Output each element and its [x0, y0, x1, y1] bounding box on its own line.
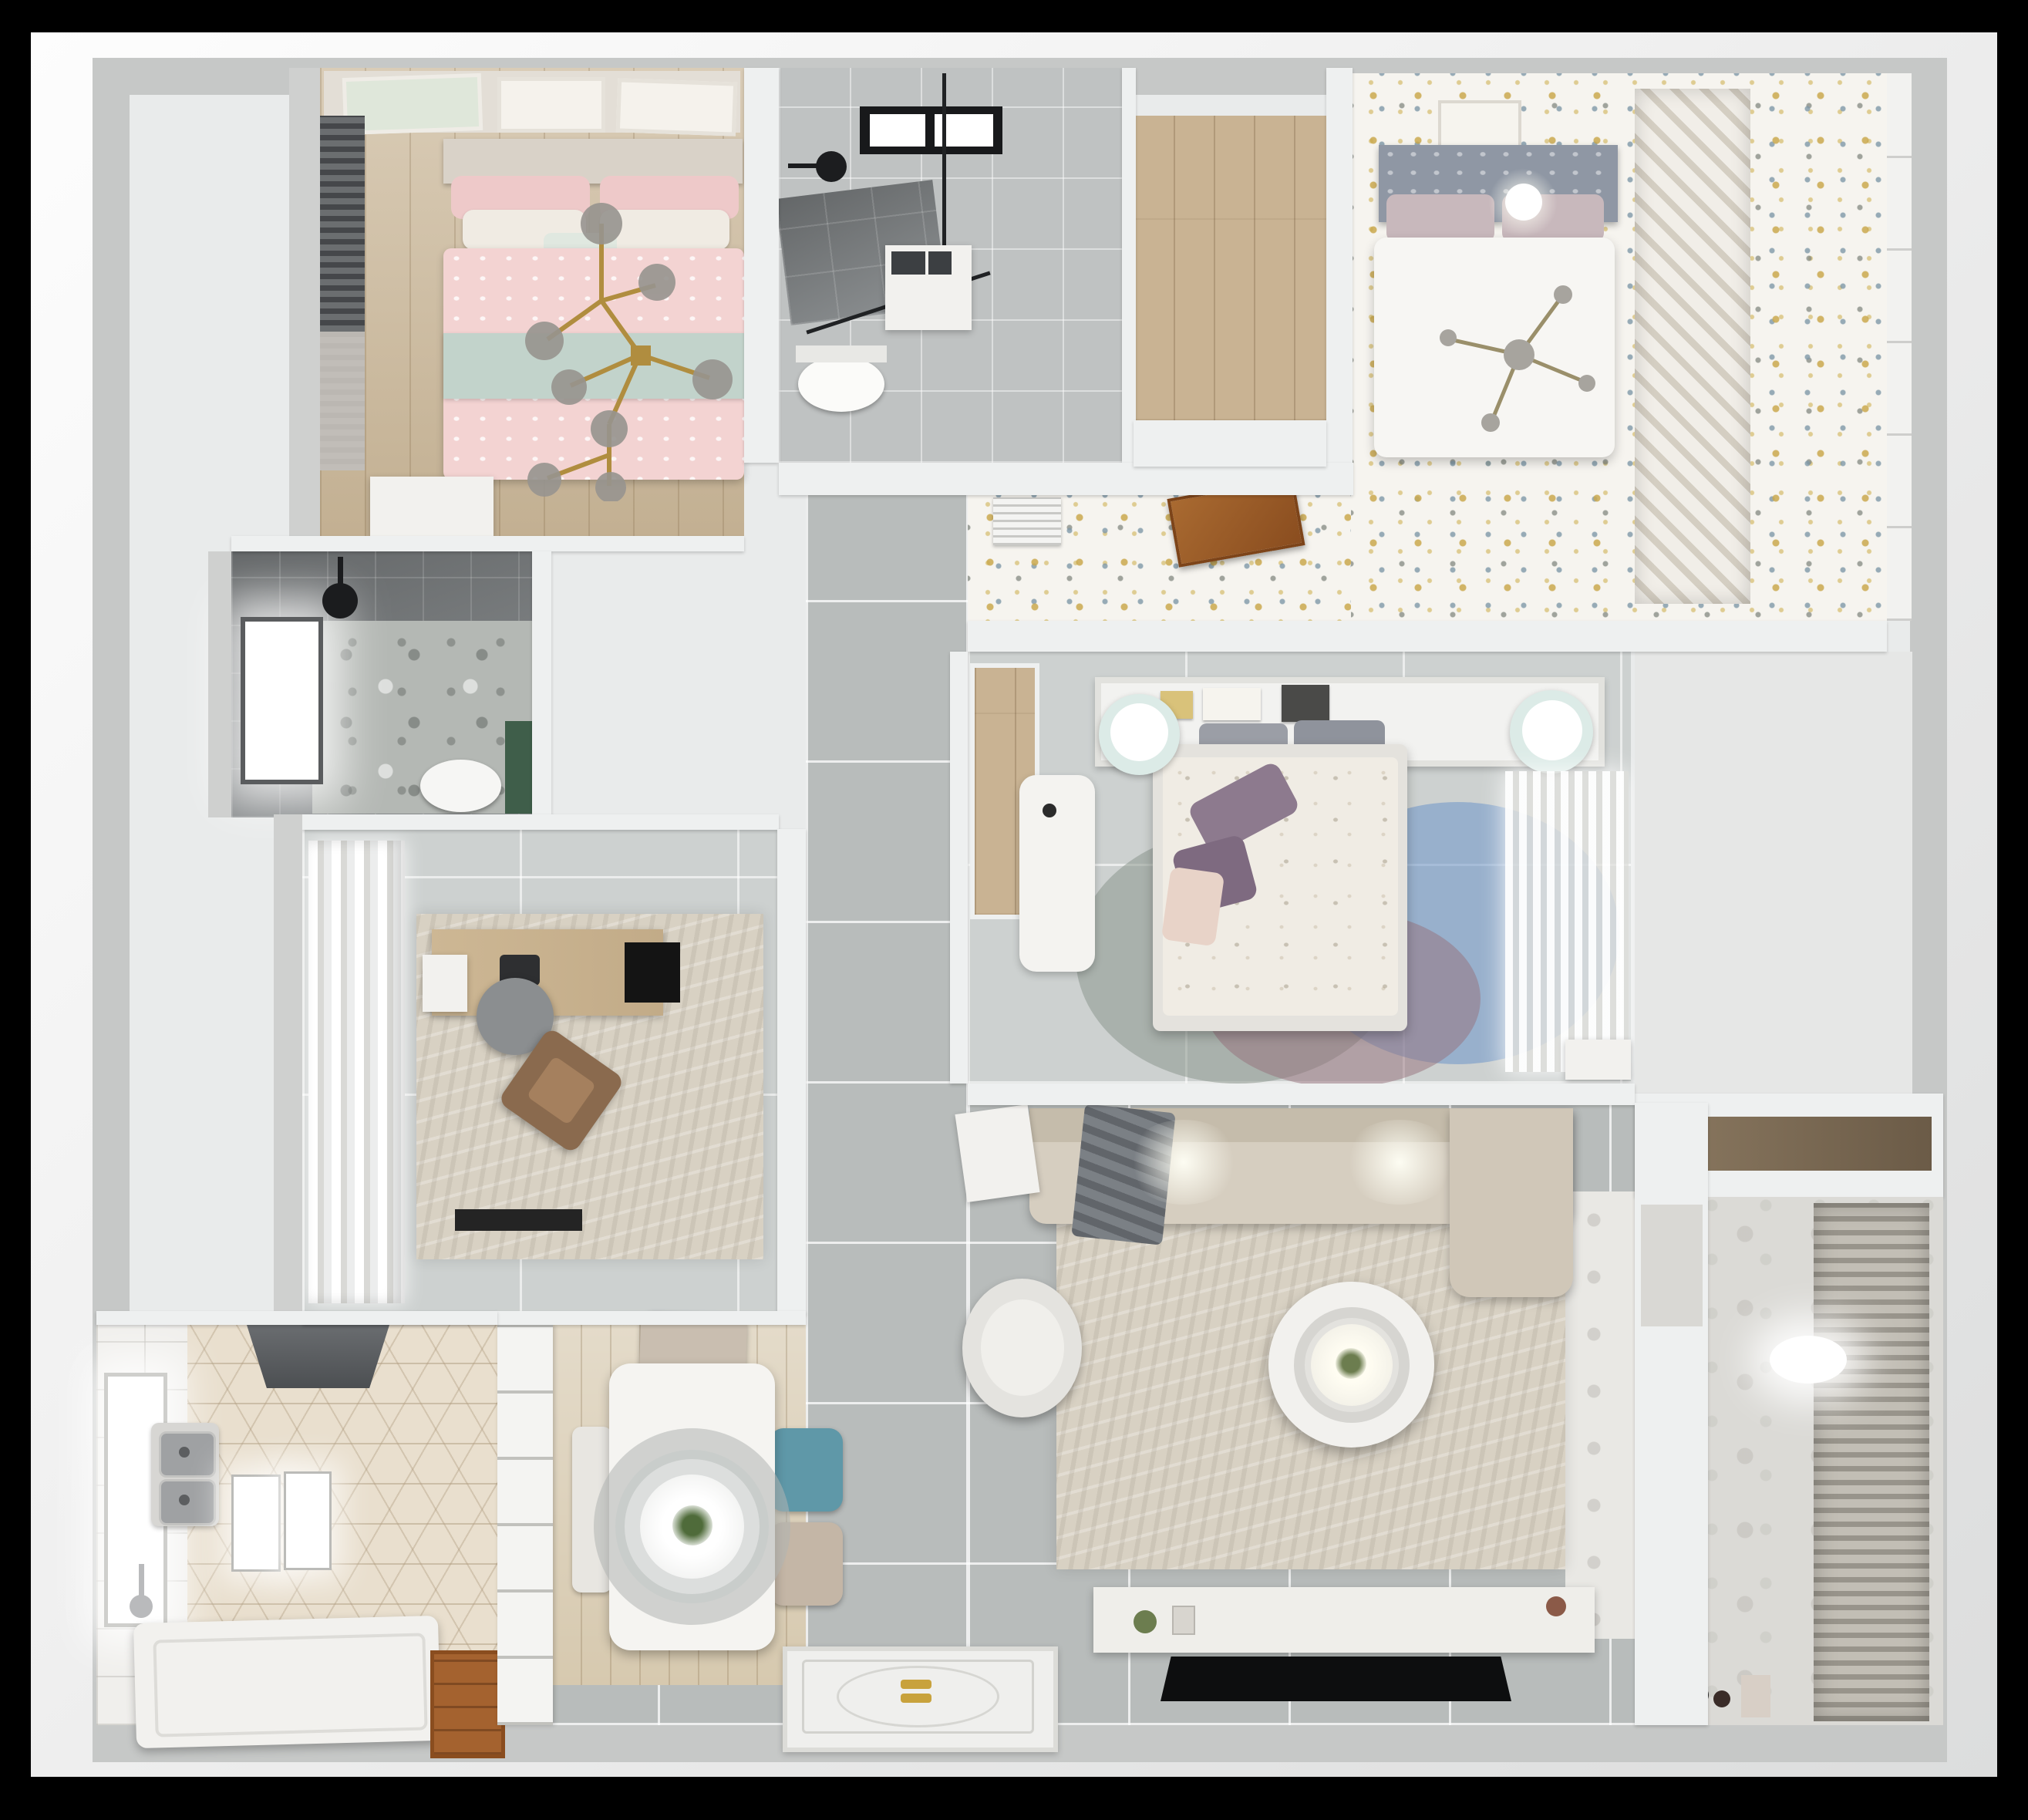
kitchen-island-rim	[153, 1633, 427, 1737]
kitchen-light-panel-2	[284, 1471, 332, 1570]
entry-door-handle-2	[901, 1694, 931, 1703]
bedroom3-desk-lamp	[1043, 804, 1056, 817]
room-closet	[1134, 116, 1326, 420]
living-tv-panel	[1161, 1657, 1511, 1701]
bathroom1-toilet	[798, 356, 884, 412]
kitchen-sink-drain-1	[179, 1447, 190, 1458]
study-cabinet	[423, 955, 467, 1012]
wall-bath-closet	[1122, 68, 1136, 463]
balcony-light-spot	[1770, 1336, 1847, 1384]
living-side-table	[955, 1104, 1039, 1202]
bathroom1-toilet-tank	[796, 345, 887, 362]
bathroom1-washer-drum-2	[928, 251, 952, 275]
bathroom1-washer-drum-1	[891, 251, 925, 275]
bedroom3-pouf-right-top	[1522, 700, 1582, 760]
bedroom3-sheer-curtains	[1505, 771, 1629, 1072]
living-sideboard-decor-1	[1172, 1606, 1195, 1635]
bedroom2-chandelier-icon	[1419, 254, 1619, 455]
kitchen-wood-mat	[430, 1650, 505, 1758]
dining-shelf-column	[497, 1325, 553, 1725]
wall-bath-bottom	[779, 463, 1353, 495]
wall-study-right	[777, 829, 806, 1315]
wall-bed1-bath	[744, 68, 779, 463]
wall-bed1-bottom	[231, 536, 744, 551]
wall-bed2-bottom	[968, 621, 1887, 652]
bedroom3-books-1	[1203, 688, 1261, 720]
living-table-plant	[1336, 1348, 1366, 1379]
bedroom3-pouf-left-top	[1110, 703, 1168, 761]
bedroom1-branch-chandelier-icon	[455, 193, 763, 501]
bedroom1-roman-shade	[320, 332, 365, 470]
bedroom2-louver-vent	[993, 497, 1061, 545]
kitchen-faucet-column	[139, 1564, 144, 1601]
living-sideboard-decor-2	[1546, 1596, 1566, 1616]
bathroom1-shower-arm	[788, 163, 822, 168]
bathroom1-window-pane-1	[870, 114, 925, 147]
showerwc-window	[241, 617, 323, 784]
wall-shower-left	[208, 551, 231, 817]
bedroom2-slatted-wardrobe	[1635, 89, 1750, 604]
bedroom3-blush-pillow	[1161, 867, 1225, 947]
balcony-toy-2	[1713, 1690, 1730, 1707]
kitchen-hood	[247, 1325, 389, 1388]
kitchen-light-panel-1	[231, 1475, 281, 1572]
wall-closet-bottom	[1134, 420, 1326, 467]
wall-corridor-bed3	[950, 652, 968, 1084]
living-lamp-glow-1	[1126, 1120, 1241, 1205]
bedroom3-radiator-box	[1565, 1040, 1631, 1080]
showerwc-shower-head	[322, 583, 358, 618]
balcony-drying-rack	[1814, 1203, 1929, 1721]
wall-study-left	[274, 814, 302, 1325]
living-sideboard-plant	[1134, 1610, 1157, 1633]
study-curtain-wall	[308, 841, 405, 1303]
kitchen-sink-drain-2	[179, 1495, 190, 1505]
wall-kitchen-top	[96, 1311, 497, 1325]
wall-shower-right	[532, 551, 551, 817]
study-desk-monitor-mat	[625, 942, 680, 1003]
bedroom1-art-1	[497, 77, 605, 133]
study-door-mat	[455, 1209, 582, 1231]
wall-study-top	[302, 814, 779, 830]
bedroom1-art-2	[616, 78, 737, 136]
entry-door-handle-1	[901, 1680, 931, 1689]
bedroom2-ball-light	[1505, 184, 1542, 221]
bedroom2-pillow-1	[1386, 194, 1494, 242]
bedroom3-desk	[1019, 775, 1095, 972]
bedroom2-window-strip	[1887, 73, 1912, 621]
right-wall-zone	[1635, 652, 1912, 1094]
dining-plant-centerpiece	[672, 1505, 712, 1545]
showerwc-shower-pipe	[338, 557, 343, 588]
balcony-door-gap	[1641, 1205, 1703, 1326]
showerwc-toilet	[420, 760, 501, 812]
wall-closet-bed2	[1326, 68, 1353, 463]
floor-plan-render	[0, 0, 2028, 1820]
wall-bed1-left	[289, 68, 320, 536]
living-sofa-chaise	[1450, 1108, 1573, 1297]
living-armchair-cushion	[981, 1299, 1064, 1396]
wall-bed3-bottom	[968, 1084, 1635, 1105]
living-motif-tile-strip	[1565, 1191, 1635, 1639]
wall-living-balcony	[1635, 1103, 1708, 1725]
showerwc-green-cabinet	[505, 721, 532, 814]
balcony-toy-box	[1741, 1675, 1770, 1717]
living-tv-sideboard	[1093, 1587, 1595, 1653]
living-lamp-glow-2	[1342, 1120, 1457, 1205]
bedroom3-books-2	[1282, 685, 1329, 722]
